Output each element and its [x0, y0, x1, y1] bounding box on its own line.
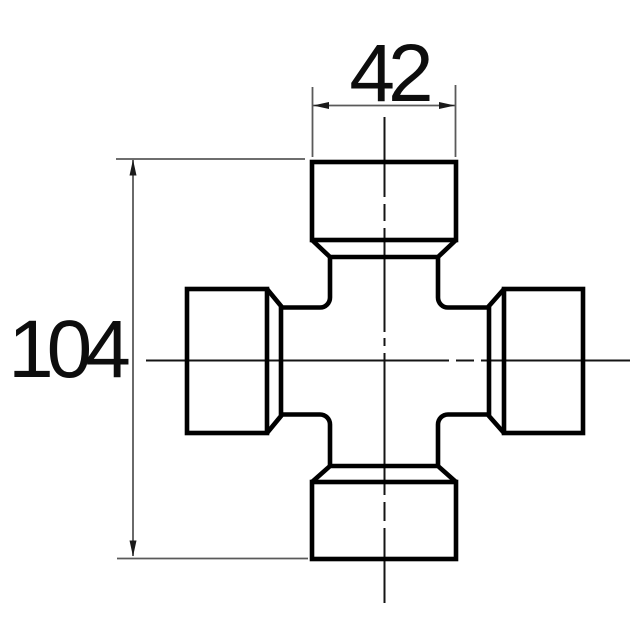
arrowhead-right-icon — [439, 102, 455, 109]
arrowhead-up-icon — [130, 160, 137, 176]
arrowhead-left-icon — [313, 102, 329, 109]
dimension-value-overall-height: 104 — [8, 304, 129, 395]
dimension-value-cap-width: 42 — [349, 28, 430, 119]
body-lower-left-fillet — [281, 415, 330, 467]
technical-drawing-page: 42 104 — [0, 0, 640, 640]
arrowhead-down-icon — [130, 541, 137, 557]
body-upper-left-fillet — [281, 257, 330, 308]
dimension-overall-height: 104 — [8, 159, 308, 559]
body-lower-right-fillet — [438, 415, 489, 467]
drawing-canvas: 42 104 — [0, 0, 640, 640]
body-upper-right-fillet — [438, 257, 489, 308]
